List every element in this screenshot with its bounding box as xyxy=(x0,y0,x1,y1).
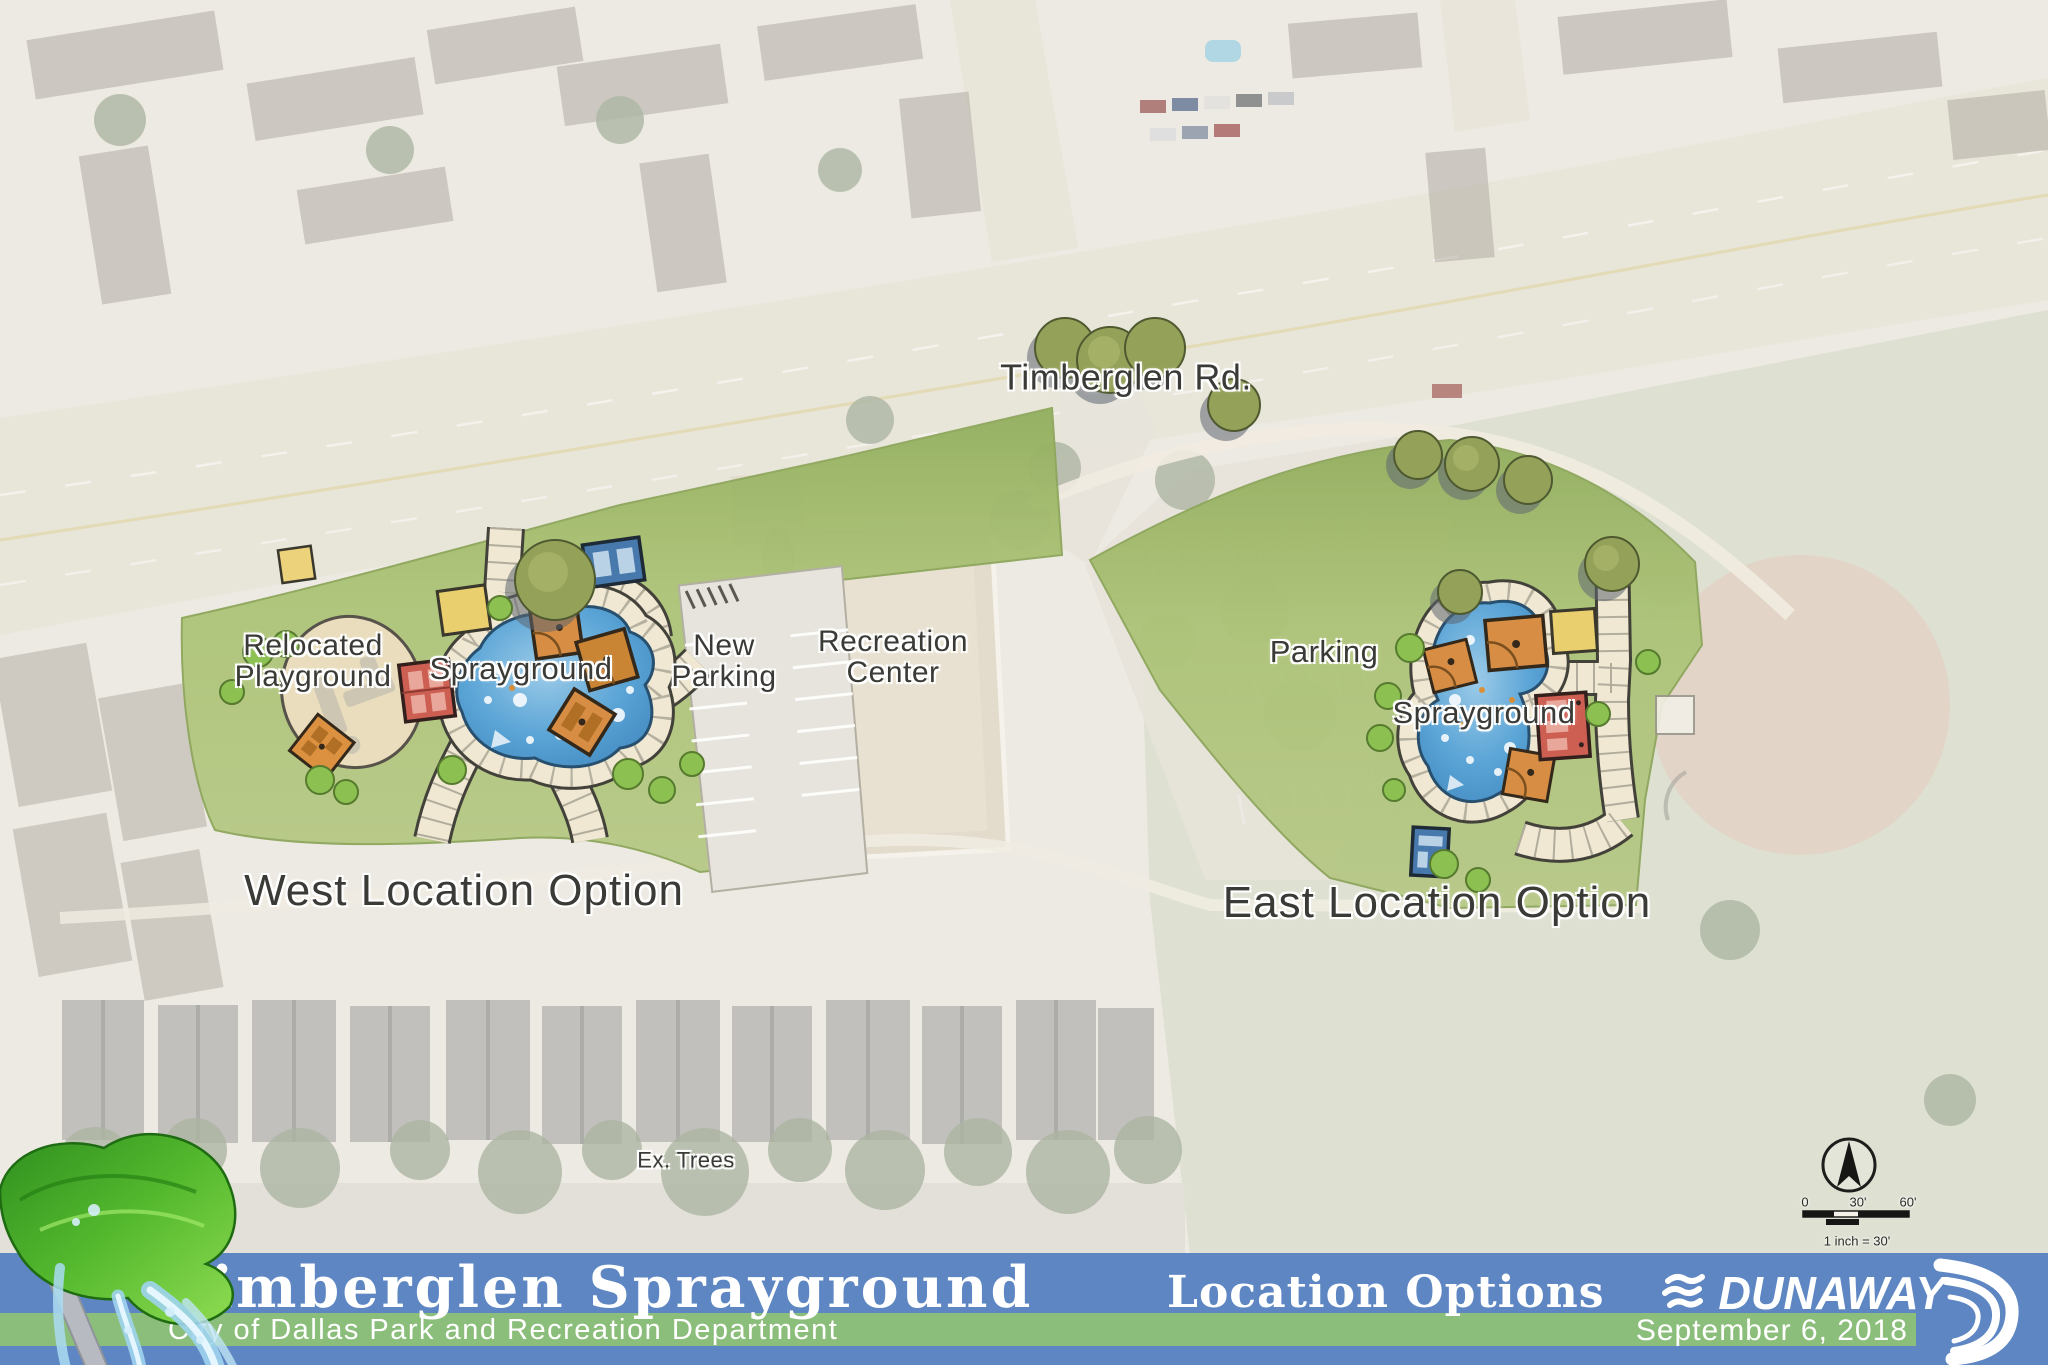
east-parking-label: Parking xyxy=(1270,636,1379,668)
east-sprayground-label: Sprayground xyxy=(1392,697,1575,729)
east-option-label: East Location Option xyxy=(1223,880,1651,926)
north-arrow-icon xyxy=(1823,1139,1875,1191)
spray-leaf-graphic xyxy=(0,1090,330,1365)
scale-start-label: 0 xyxy=(1801,1195,1808,1210)
west-option-label: West Location Option xyxy=(244,868,684,914)
scale-caption: 1 inch = 30' xyxy=(1824,1234,1890,1249)
label-line: Relocated xyxy=(235,630,392,661)
recreation-center-label: Recreation Center xyxy=(818,626,968,688)
firm-name: DUNAWAY xyxy=(1718,1266,1945,1320)
label-line: Sprayground xyxy=(429,653,612,685)
label-line: Timberglen Rd. xyxy=(1000,358,1252,395)
relocated-playground-label: Relocated Playground xyxy=(235,630,392,692)
sheet-name: Location Options xyxy=(1167,1267,1605,1318)
label-line: New xyxy=(671,630,776,661)
road-label: Timberglen Rd. xyxy=(1000,358,1252,395)
leaf-spray-icon xyxy=(0,1090,330,1365)
firm-logo: DUNAWAY xyxy=(1660,1266,1948,1320)
label-line: Playground xyxy=(235,661,392,692)
sheet-date: September 6, 2018 xyxy=(1636,1314,1908,1348)
label-line: Parking xyxy=(1270,636,1379,668)
dunaway-wave-icon xyxy=(1660,1271,1712,1315)
label-line: Center xyxy=(818,657,968,688)
label-line: Sprayground xyxy=(1392,697,1575,729)
existing-trees-label: Ex. Trees xyxy=(637,1150,734,1173)
label-line: East Location Option xyxy=(1223,880,1651,926)
new-parking-label: New Parking xyxy=(671,630,776,692)
site-plan-sheet: Timberglen Rd. Relocated Playground Spra… xyxy=(0,0,2048,1365)
scale-end-label: 60' xyxy=(1900,1195,1917,1210)
label-line: West Location Option xyxy=(244,868,684,914)
dunaway-swoosh-icon xyxy=(1922,1255,2042,1365)
scale-mid-label: 30' xyxy=(1850,1195,1867,1210)
label-line: Ex. Trees xyxy=(637,1150,734,1173)
label-line: Recreation xyxy=(818,626,968,657)
new-parking-lot xyxy=(678,566,868,893)
west-sprayground-label: Sprayground xyxy=(429,653,612,685)
label-line: Parking xyxy=(671,661,776,692)
